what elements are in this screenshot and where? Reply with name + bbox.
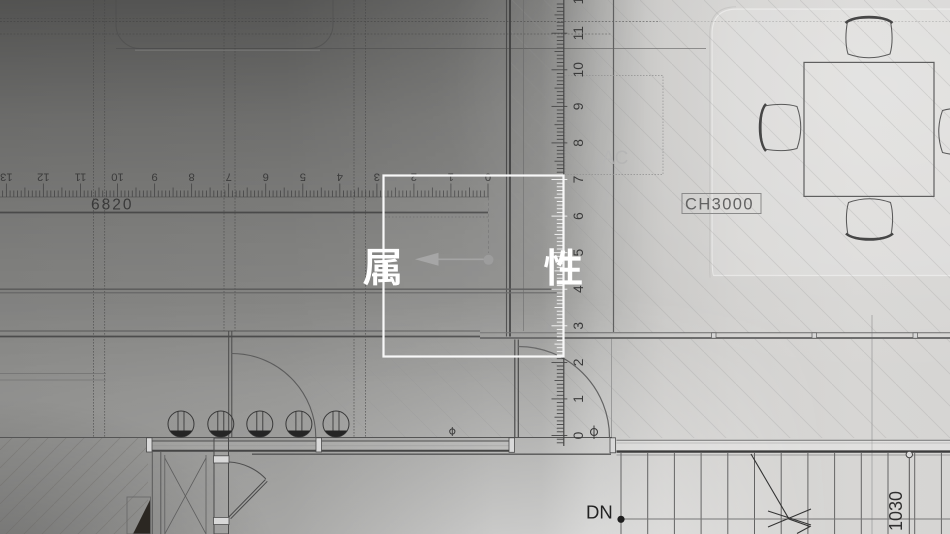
svg-text:11: 11: [571, 26, 586, 40]
svg-text:1030: 1030: [886, 491, 906, 531]
svg-text:2: 2: [571, 359, 586, 367]
svg-text:6820: 6820: [91, 197, 133, 214]
svg-text:9: 9: [151, 170, 157, 182]
svg-text:AC: AC: [602, 148, 628, 169]
svg-text:11: 11: [75, 170, 87, 182]
svg-text:13: 13: [0, 170, 13, 182]
svg-text:6: 6: [571, 212, 586, 220]
svg-text:8: 8: [188, 170, 194, 182]
svg-text:10: 10: [571, 62, 586, 78]
svg-text:5: 5: [571, 249, 586, 257]
svg-text:8: 8: [571, 139, 586, 147]
svg-text:12: 12: [37, 170, 50, 182]
svg-text:DN: DN: [586, 502, 613, 523]
svg-text:0: 0: [571, 431, 586, 439]
svg-text:7: 7: [226, 170, 232, 182]
svg-text:CH3000: CH3000: [685, 196, 754, 214]
svg-text:6: 6: [263, 170, 269, 182]
svg-text:10: 10: [111, 170, 124, 182]
svg-text:4: 4: [337, 170, 343, 182]
svg-text:9: 9: [571, 102, 586, 110]
svg-text:5: 5: [300, 170, 306, 182]
svg-text:4: 4: [571, 285, 586, 293]
svg-text:3: 3: [571, 322, 586, 330]
svg-text:12: 12: [571, 0, 586, 4]
svg-text:7: 7: [571, 176, 586, 184]
svg-text:1: 1: [571, 395, 586, 403]
svg-text:3: 3: [374, 170, 380, 182]
